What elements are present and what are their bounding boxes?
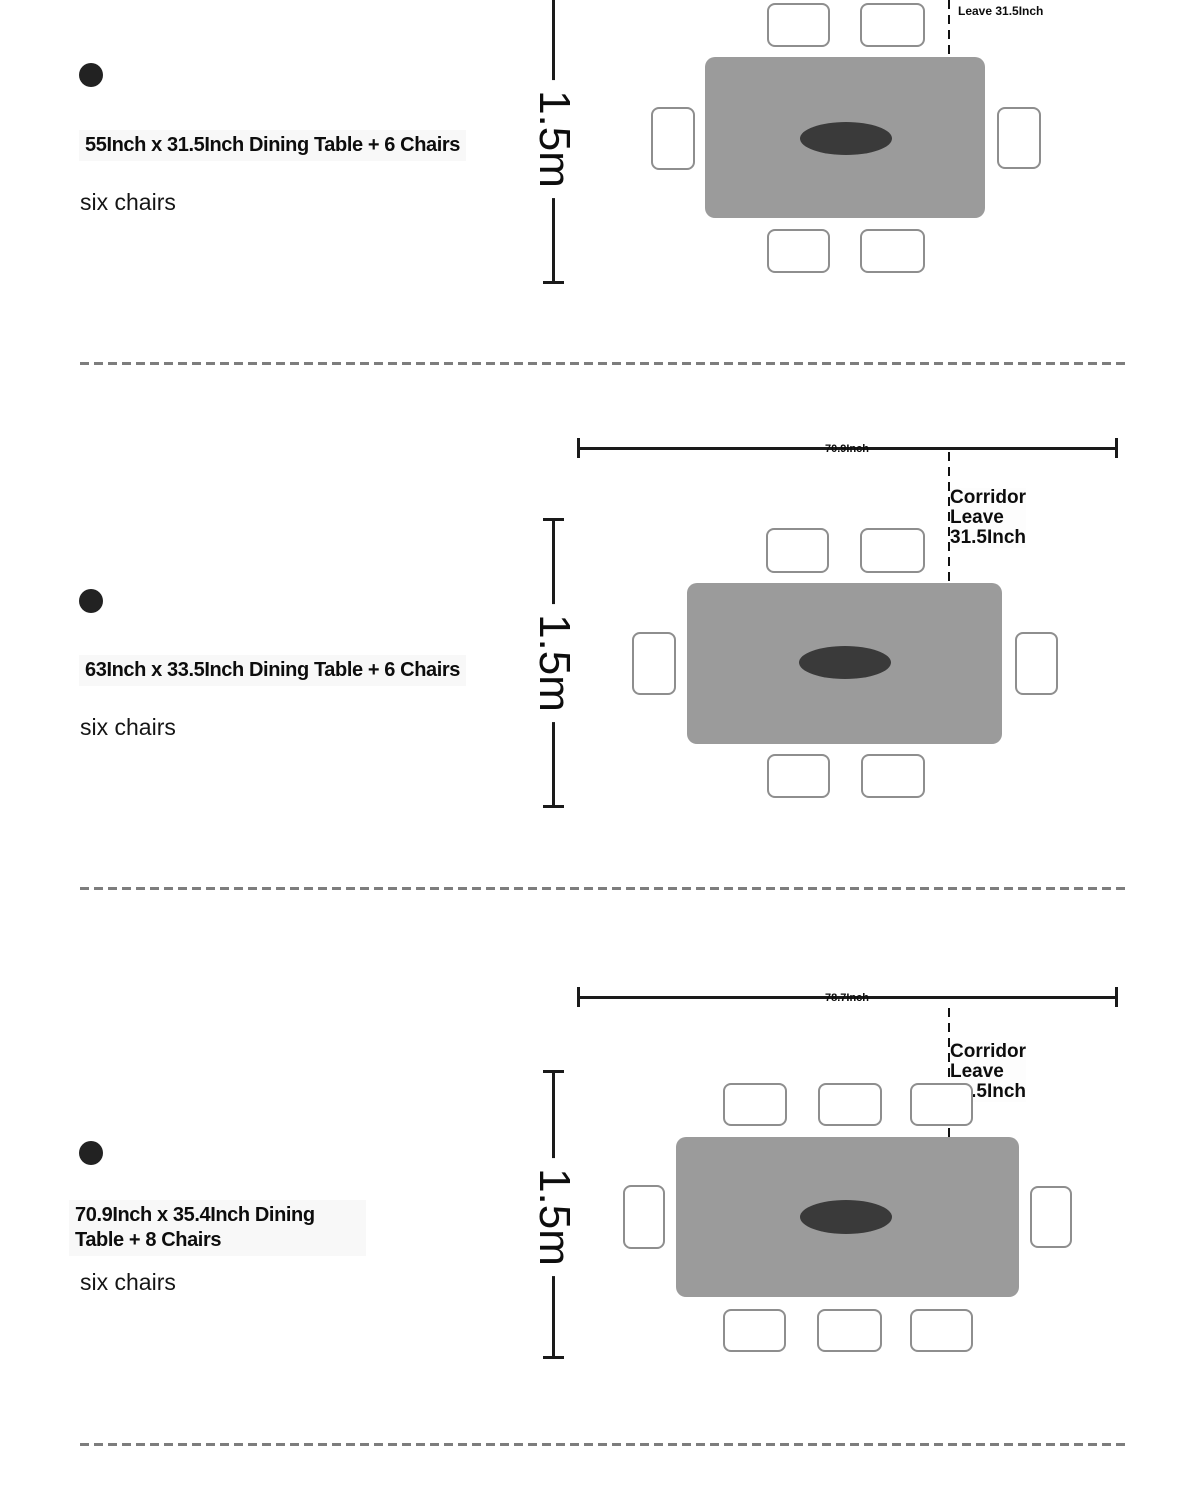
chair (910, 1309, 973, 1352)
bullet-icon (79, 1141, 103, 1165)
chair (767, 229, 830, 273)
dimension-tick (543, 518, 564, 521)
corridor-note: Corridor Leave 31.5Inch (950, 488, 1026, 548)
chair (632, 632, 676, 695)
bullet-icon (79, 589, 103, 613)
corridor-dashed-line (948, 0, 950, 57)
section-subtitle: six chairs (80, 188, 176, 216)
table-centerpiece-oval (800, 1200, 892, 1234)
dining-table-layout-diagram: 55Inch x 31.5Inch Dining Table + 6 Chair… (0, 0, 1200, 1502)
corridor-note-line: Corridor (950, 488, 1026, 508)
chair (651, 107, 695, 170)
dimension-tick (543, 1070, 564, 1073)
dimension-tick (543, 281, 564, 284)
section-title: 63Inch x 33.5Inch Dining Table + 6 Chair… (79, 655, 466, 686)
chair (766, 528, 829, 573)
chair (767, 3, 830, 47)
chair (1030, 1186, 1072, 1248)
section-subtitle: six chairs (80, 1268, 176, 1296)
table-centerpiece-oval (799, 646, 891, 679)
dimension-tick (1115, 438, 1118, 458)
horizontal-dimension-label: 78.7Inch (825, 992, 869, 1004)
dimension-tick (543, 805, 564, 808)
corridor-note-line: Leave (950, 1062, 1026, 1082)
corridor-note-line: 31.5Inch (950, 528, 1026, 548)
dimension-tick (1115, 987, 1118, 1007)
chair (818, 1083, 882, 1126)
chair (860, 3, 925, 47)
vertical-dimension-label: 1.5m (525, 1158, 583, 1276)
chair (860, 528, 925, 573)
chair (723, 1083, 787, 1126)
chair (910, 1083, 973, 1126)
horizontal-dimension-label: 70.9Inch (825, 443, 869, 455)
dimension-tick (577, 438, 580, 458)
chair (997, 107, 1041, 169)
chair (861, 754, 925, 798)
chair (817, 1309, 882, 1352)
dimension-tick (577, 987, 580, 1007)
bullet-icon (79, 63, 103, 87)
section-title: 70.9Inch x 35.4Inch Dining Table + 8 Cha… (69, 1200, 366, 1256)
section-separator (80, 362, 1125, 365)
chair (860, 229, 925, 273)
chair (623, 1185, 665, 1249)
section-subtitle: six chairs (80, 713, 176, 741)
section-separator (80, 887, 1125, 890)
table-centerpiece-oval (800, 122, 892, 155)
chair (767, 754, 830, 798)
corridor-note-line: Leave (950, 508, 1026, 528)
chair (723, 1309, 786, 1352)
vertical-dimension-label: 1.5m (525, 80, 583, 198)
section-title: 55Inch x 31.5Inch Dining Table + 6 Chair… (79, 130, 466, 161)
vertical-dimension-label: 1.5m (525, 604, 583, 722)
dimension-tick (543, 1356, 564, 1359)
chair (1015, 632, 1058, 695)
section-separator (80, 1443, 1125, 1446)
corridor-note-line: Corridor (950, 1042, 1026, 1062)
corridor-note: Leave 31.5Inch (958, 4, 1043, 18)
